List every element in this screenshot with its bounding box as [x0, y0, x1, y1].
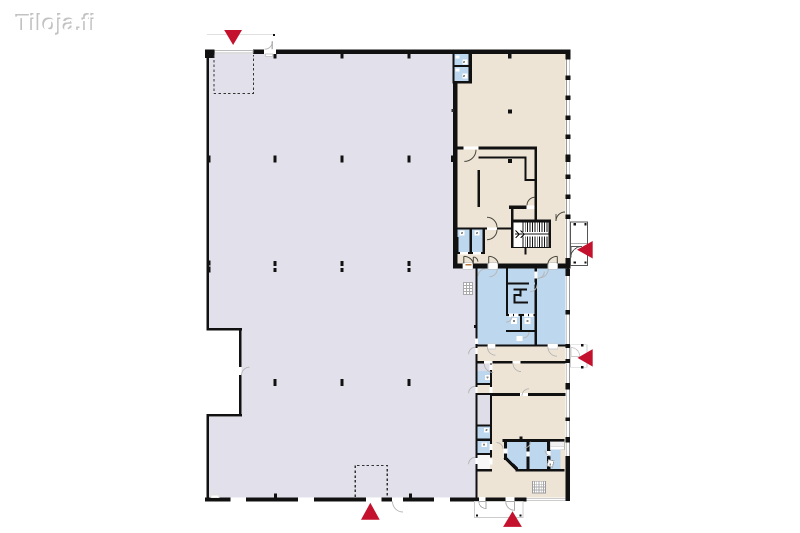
svg-text:Tiloja.fi: Tiloja.fi	[17, 11, 97, 37]
